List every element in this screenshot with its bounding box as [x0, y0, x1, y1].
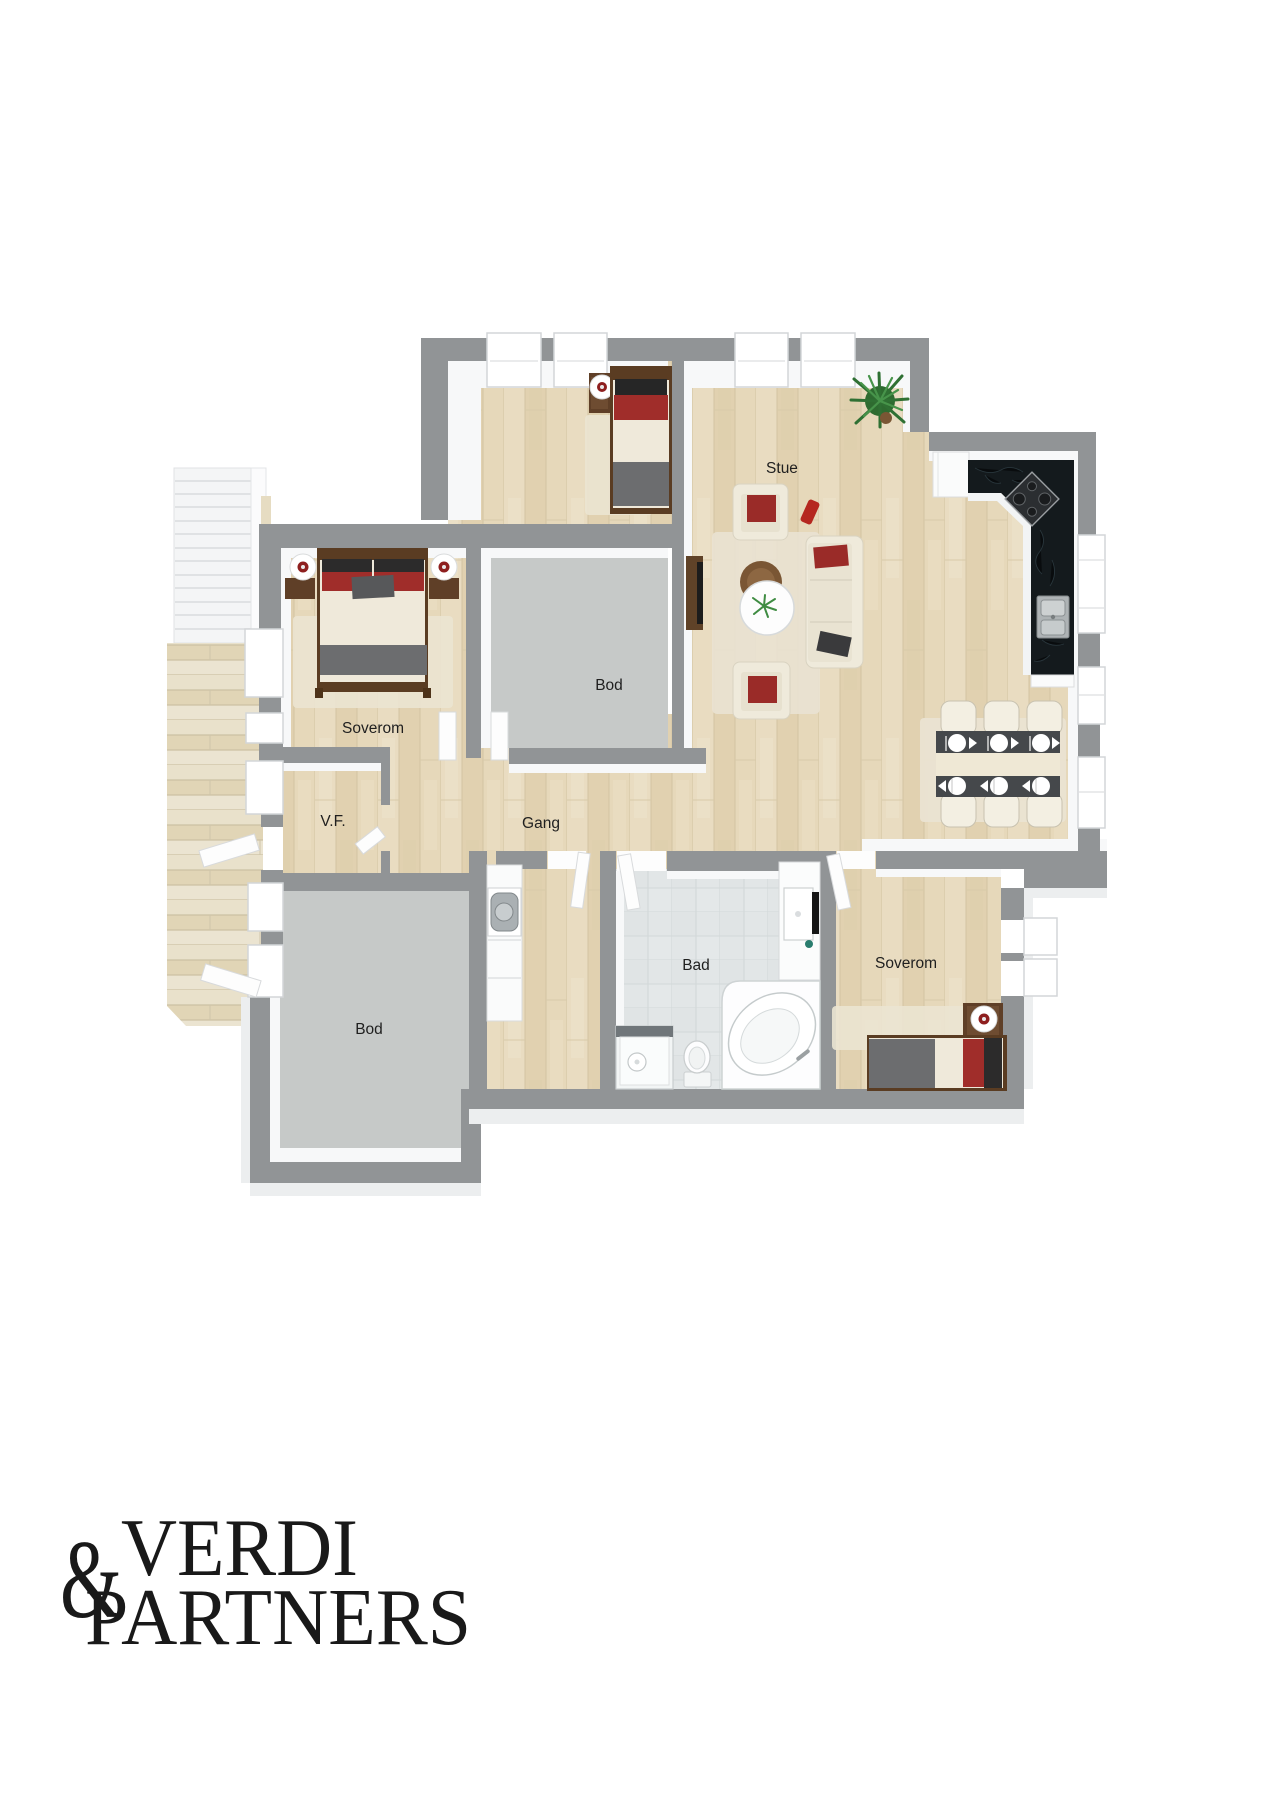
svg-text:Bod: Bod — [595, 677, 623, 694]
svg-text:Soverom: Soverom — [875, 955, 937, 972]
svg-text:PARTNERS: PARTNERS — [85, 1574, 471, 1662]
svg-text:Bad: Bad — [682, 957, 710, 974]
svg-text:Gang: Gang — [522, 815, 560, 832]
svg-text:Soverom: Soverom — [342, 720, 404, 737]
svg-text:Bod: Bod — [355, 1021, 383, 1038]
svg-text:V.F.: V.F. — [320, 813, 345, 830]
svg-text:Stue: Stue — [766, 460, 798, 477]
